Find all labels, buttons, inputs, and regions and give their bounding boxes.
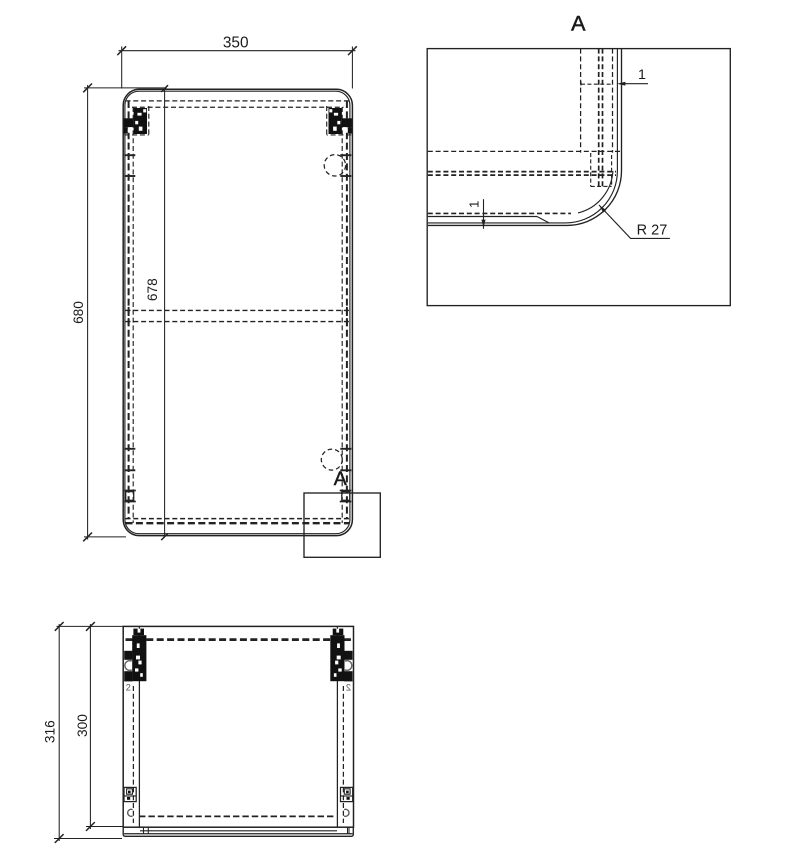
svg-text:A: A [334, 468, 347, 490]
svg-text:300: 300 [75, 714, 90, 737]
svg-text:1: 1 [638, 67, 646, 83]
svg-text:678: 678 [145, 278, 160, 301]
svg-text:2: 2 [126, 683, 131, 693]
svg-text:1: 1 [466, 201, 481, 208]
svg-text:R 27: R 27 [637, 222, 668, 238]
svg-text:680: 680 [71, 301, 86, 324]
svg-text:316: 316 [43, 720, 58, 743]
svg-text:A: A [571, 12, 586, 36]
svg-text:350: 350 [223, 35, 249, 52]
